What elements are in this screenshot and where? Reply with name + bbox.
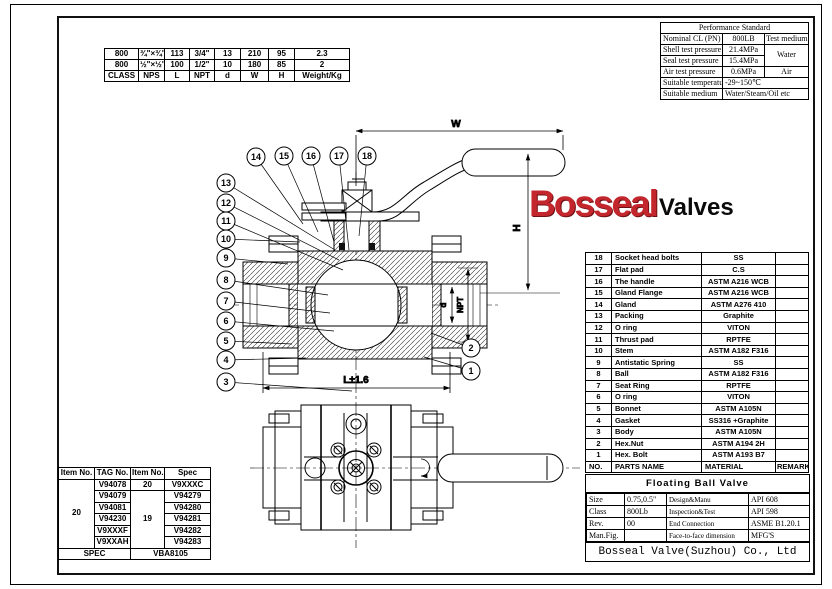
stem-nut xyxy=(348,182,366,190)
part-no: 17 xyxy=(586,264,612,276)
part-no: 15 xyxy=(586,287,612,299)
part-no: 18 xyxy=(586,253,612,265)
part-name: Flat pad xyxy=(612,264,702,276)
part-remark xyxy=(776,276,809,288)
field-label: Size xyxy=(587,494,625,506)
balloon-number: 14 xyxy=(251,152,261,162)
part-material: ASTM A105N xyxy=(702,426,776,438)
spec-label: SPEC xyxy=(59,548,131,560)
balloon-number: 17 xyxy=(334,151,344,161)
part-remark xyxy=(776,426,809,438)
field-value: API 598 xyxy=(749,506,810,518)
field-label: Class xyxy=(587,506,625,518)
part-no: 1 xyxy=(586,450,612,462)
column-header: Item No. xyxy=(131,468,165,480)
rotation-arrow xyxy=(421,459,430,476)
column-header: Item No. xyxy=(59,468,95,480)
tag-no: V94230 xyxy=(95,514,131,526)
dim-cell: 95 xyxy=(269,49,295,60)
perf-value: Test medium xyxy=(765,34,809,45)
column-header: W xyxy=(241,71,269,82)
part-material: RPTFE xyxy=(702,380,776,392)
spec: V94281 xyxy=(165,514,211,526)
part-no: 14 xyxy=(586,299,612,311)
dim-cell: 800 xyxy=(105,60,139,71)
balloon-number: 11 xyxy=(221,216,231,226)
part-no: 12 xyxy=(586,322,612,334)
column-header: NPT xyxy=(190,71,215,82)
balloon-number: 18 xyxy=(362,151,372,161)
part-remark xyxy=(776,310,809,322)
column-header: Spec xyxy=(165,468,211,480)
tag-no: V9XXAH xyxy=(95,537,131,549)
part-remark xyxy=(776,415,809,427)
perf-label: Seal test pressure xyxy=(661,56,723,67)
part-no: 9 xyxy=(586,357,612,369)
column-header: NO. xyxy=(586,461,612,473)
column-header: MATERIAL xyxy=(702,461,776,473)
balloon-number: 10 xyxy=(221,234,231,244)
part-no: 13 xyxy=(586,310,612,322)
field-value: MFG'S xyxy=(749,530,810,542)
perf-value: 15.4MPa xyxy=(723,56,765,67)
company-logo: Bosseal Valves xyxy=(529,186,734,221)
part-name: Thrust pad xyxy=(612,334,702,346)
perf-value: Air xyxy=(765,67,809,78)
valve-cross-section-view xyxy=(243,149,565,374)
dim-d: d xyxy=(439,302,448,307)
part-no: 6 xyxy=(586,392,612,404)
dim-cell: ½"×½" xyxy=(139,60,165,71)
packing-left xyxy=(339,243,345,250)
field-label: Man.Fig. xyxy=(587,530,625,542)
field-value: 0.75,0.5" xyxy=(625,494,667,506)
part-no: 11 xyxy=(586,334,612,346)
dim-cell: 85 xyxy=(269,60,295,71)
balloon-leader xyxy=(311,156,334,242)
field-value: ASME B1.20.1 xyxy=(749,518,810,530)
dim-cell: 13 xyxy=(215,49,241,60)
perf-label: Air test pressure xyxy=(661,67,723,78)
title-block-fields: Size0.75,0.5"Design&ManuAPI 608Class800L… xyxy=(586,493,810,542)
title-block: Floating Ball Valve Size0.75,0.5"Design&… xyxy=(585,474,810,562)
balloon-number: 1 xyxy=(468,366,473,376)
dimension-table: 800¾"×¾"1133/4"13210952.3800½"×½"1001/2"… xyxy=(104,48,350,82)
part-no: 5 xyxy=(586,403,612,415)
item-no: 20 xyxy=(59,479,95,548)
column-header: PARTS NAME xyxy=(612,461,702,473)
dim-cell: ¾"×¾" xyxy=(139,49,165,60)
part-material: ASTM A194 2H xyxy=(702,438,776,450)
column-header: d xyxy=(215,71,241,82)
field-value: API 608 xyxy=(749,494,810,506)
part-name: The handle xyxy=(612,276,702,288)
part-name: Socket head bolts xyxy=(612,253,702,265)
part-name: Hex. Bolt xyxy=(612,450,702,462)
part-name: Gland Flange xyxy=(612,287,702,299)
part-name: O ring xyxy=(612,322,702,334)
spec: V94280 xyxy=(165,502,211,514)
column-header: Weight/Kg xyxy=(295,71,350,82)
balloon-number: 13 xyxy=(221,178,231,188)
part-material: RPTFE xyxy=(702,334,776,346)
tag-no: V94079 xyxy=(95,491,131,503)
part-name: Ball xyxy=(612,368,702,380)
part-name: Gland xyxy=(612,299,702,311)
column-header: NPS xyxy=(139,71,165,82)
part-name: Antistatic Spring xyxy=(612,357,702,369)
right-flange xyxy=(411,411,437,524)
part-remark xyxy=(776,334,809,346)
field-label: End Connection xyxy=(667,518,749,530)
perf-value: 800LB xyxy=(723,34,765,45)
part-material: ASTM A216 WCB xyxy=(702,276,776,288)
part-material: VITON xyxy=(702,322,776,334)
balloon-number: 15 xyxy=(279,151,289,161)
part-remark xyxy=(776,438,809,450)
balloon-number: 12 xyxy=(221,198,231,208)
balloon-number: 16 xyxy=(306,151,316,161)
dim-l: L±1.6 xyxy=(343,375,369,386)
column-header: H xyxy=(269,71,295,82)
perf-label: Suitable temperature xyxy=(661,78,723,89)
balloon-number: 4 xyxy=(223,355,228,365)
left-flange xyxy=(275,411,301,524)
dim-npt: NPT xyxy=(456,297,465,313)
part-name: Seat Ring xyxy=(612,380,702,392)
perf-value: -29~150℃ xyxy=(723,78,809,89)
dim-cell: 113 xyxy=(165,49,190,60)
logo-secondary-text: Valves xyxy=(659,194,734,222)
part-remark xyxy=(776,368,809,380)
perf-label: Shell test pressure xyxy=(661,45,723,56)
part-material: ASTM A216 WCB xyxy=(702,287,776,299)
part-no: 10 xyxy=(586,345,612,357)
tag-no: V94081 xyxy=(95,502,131,514)
balloon-number: 6 xyxy=(223,316,228,326)
field-value: 800Lb xyxy=(625,506,667,518)
drawing-title: Floating Ball Valve xyxy=(586,475,809,493)
dim-w: W xyxy=(451,119,461,130)
performance-title: Performance Standard xyxy=(661,23,809,34)
part-material: SS xyxy=(702,357,776,369)
dim-cell: 180 xyxy=(241,60,269,71)
handle-grip xyxy=(462,149,565,176)
valve-top-view xyxy=(263,405,563,530)
perf-value: 0.6MPa xyxy=(723,67,765,78)
part-name: Stem xyxy=(612,345,702,357)
spec: V9XXXC xyxy=(165,479,211,491)
part-no: 3 xyxy=(586,426,612,438)
spec-value: VBA8105 xyxy=(131,548,211,560)
part-name: Hex.Nut xyxy=(612,438,702,450)
item-no: 20 xyxy=(131,479,165,491)
performance-standard-table: Performance Standard Nominal CL (PN) 800… xyxy=(660,22,809,100)
dim-h: H xyxy=(512,224,523,231)
spec: V94282 xyxy=(165,525,211,537)
part-remark xyxy=(776,357,809,369)
balloon-number: 8 xyxy=(223,275,228,285)
part-material: ASTM A193 B7 xyxy=(702,450,776,462)
part-name: Body xyxy=(612,426,702,438)
part-name: O ring xyxy=(612,392,702,404)
packing-right xyxy=(369,243,375,250)
seat-ring-right xyxy=(398,287,407,323)
balloon-leader xyxy=(256,157,303,224)
part-material: C.S xyxy=(702,264,776,276)
part-remark xyxy=(776,299,809,311)
item-no: 19 xyxy=(131,491,165,549)
parts-list-table: 18Socket head boltsSS17Flat padC.S16The … xyxy=(585,252,809,473)
field-label: Rev. xyxy=(587,518,625,530)
part-remark xyxy=(776,264,809,276)
part-material: Graphite xyxy=(702,310,776,322)
part-name: Gasket xyxy=(612,415,702,427)
tag-no: V94078 xyxy=(95,479,131,491)
field-label: Face-to-face dimension xyxy=(667,530,749,542)
dim-cell: 210 xyxy=(241,49,269,60)
part-material: SS316 +Graphite xyxy=(702,415,776,427)
part-no: 4 xyxy=(586,415,612,427)
part-no: 7 xyxy=(586,380,612,392)
dim-cell: 800 xyxy=(105,49,139,60)
balloon-number: 3 xyxy=(223,377,228,387)
balloon-number: 9 xyxy=(223,253,228,263)
part-material: ASTM A182 F316 xyxy=(702,345,776,357)
field-value: 00 xyxy=(625,518,667,530)
part-name: Packing xyxy=(612,310,702,322)
tag-no: V9XXXF xyxy=(95,525,131,537)
perf-label: Suitable medium xyxy=(661,89,723,100)
part-remark xyxy=(776,403,809,415)
part-remark xyxy=(776,345,809,357)
part-material: ASTM A105N xyxy=(702,403,776,415)
part-material: SS xyxy=(702,253,776,265)
dim-cell: 3/4" xyxy=(190,49,215,60)
spec: V94279 xyxy=(165,491,211,503)
company-name: Bosseal Valve(Suzhou) Co., Ltd xyxy=(586,542,809,561)
spec: V94283 xyxy=(165,537,211,549)
perf-value: Water xyxy=(765,45,809,67)
dim-cell: 1/2" xyxy=(190,60,215,71)
dim-cell: 2.3 xyxy=(295,49,350,60)
perf-value: Water/Steam/Oil etc xyxy=(723,89,809,100)
field-label: Design&Manu xyxy=(667,494,749,506)
column-header: REMARK xyxy=(776,461,809,473)
part-no: 16 xyxy=(586,276,612,288)
flat-pad xyxy=(302,213,346,220)
part-no: 8 xyxy=(586,368,612,380)
dim-cell: 2 xyxy=(295,60,350,71)
field-label: Inspection&Test xyxy=(667,506,749,518)
part-no: 2 xyxy=(586,438,612,450)
part-remark xyxy=(776,322,809,334)
part-remark xyxy=(776,450,809,462)
perf-label: Nominal CL (PN) xyxy=(661,34,723,45)
balloon-leader xyxy=(226,382,352,391)
part-remark xyxy=(776,392,809,404)
perf-value: 21.4MPa xyxy=(723,45,765,56)
ball xyxy=(311,260,401,350)
column-header: L xyxy=(165,71,190,82)
drawing-sheet: W H d NPT L±1.6 141516171813121110987654… xyxy=(0,0,832,589)
dim-cell: 10 xyxy=(215,60,241,71)
part-name: Bonnet xyxy=(612,403,702,415)
column-header: TAG No. xyxy=(95,468,131,480)
balloon-number: 5 xyxy=(223,336,228,346)
left-cap-top xyxy=(263,427,301,508)
part-remark xyxy=(776,253,809,265)
part-material: ASTM A182 F316 xyxy=(702,368,776,380)
dim-cell: 100 xyxy=(165,60,190,71)
column-header: CLASS xyxy=(105,71,139,82)
part-material: ASTM A276 410 xyxy=(702,299,776,311)
balloon-number: 2 xyxy=(468,343,473,353)
tag-number-table: Item No.TAG No.Item No.Spec20V9407820V9X… xyxy=(58,467,211,560)
field-value xyxy=(625,530,667,542)
logo-primary-text: Bosseal xyxy=(529,186,657,221)
balloon-number: 7 xyxy=(223,296,228,306)
part-remark xyxy=(776,287,809,299)
part-material: VITON xyxy=(702,392,776,404)
part-remark xyxy=(776,380,809,392)
